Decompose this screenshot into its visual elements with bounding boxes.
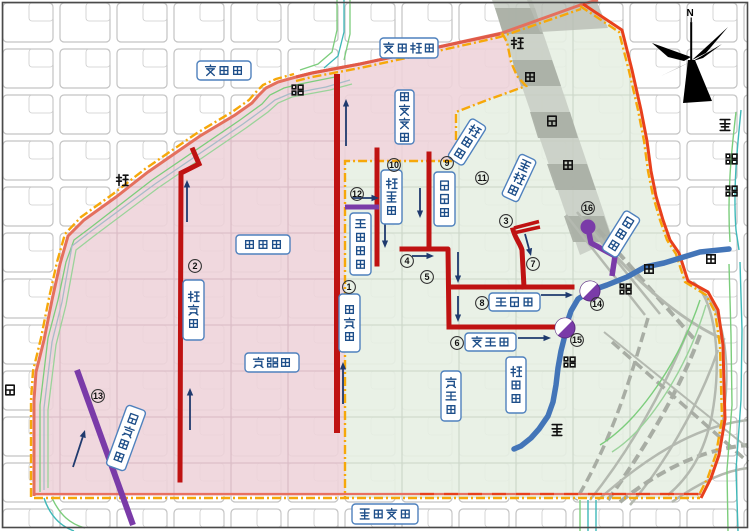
svg-text:6: 6 bbox=[454, 338, 459, 348]
svg-text:13: 13 bbox=[93, 391, 103, 401]
svg-text:3: 3 bbox=[503, 216, 508, 226]
svg-text:16: 16 bbox=[583, 203, 593, 213]
svg-text:7: 7 bbox=[530, 259, 535, 269]
svg-text:14: 14 bbox=[592, 299, 602, 309]
svg-text:4: 4 bbox=[404, 256, 409, 266]
svg-text:5: 5 bbox=[424, 272, 429, 282]
svg-text:10: 10 bbox=[389, 160, 399, 170]
svg-text:N: N bbox=[687, 8, 694, 19]
svg-text:1: 1 bbox=[346, 282, 351, 292]
svg-text:2: 2 bbox=[192, 261, 197, 271]
svg-text:15: 15 bbox=[572, 335, 582, 345]
svg-text:12: 12 bbox=[352, 189, 362, 199]
svg-text:8: 8 bbox=[479, 298, 484, 308]
svg-text:9: 9 bbox=[444, 158, 449, 168]
svg-text:11: 11 bbox=[477, 173, 487, 183]
